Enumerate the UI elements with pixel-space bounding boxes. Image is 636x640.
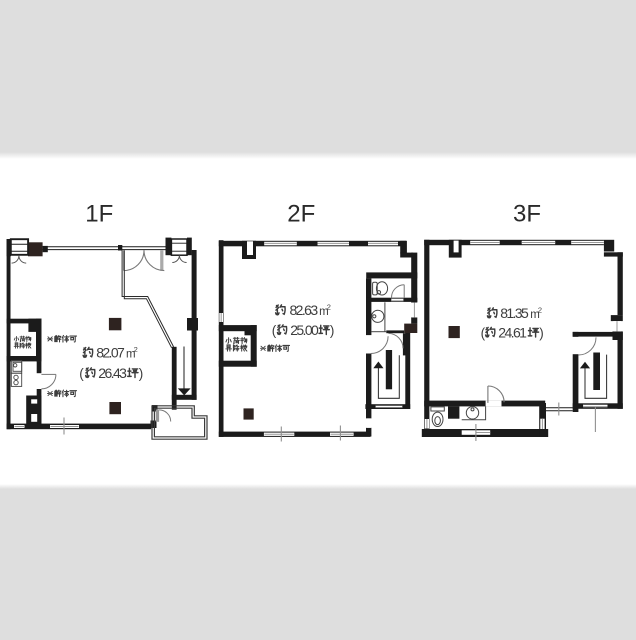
svg-text:): ) (139, 366, 144, 381)
svg-text:2: 2 (134, 345, 138, 354)
svg-text:82.07: 82.07 (96, 345, 125, 361)
svg-text:24.61: 24.61 (498, 324, 527, 340)
svg-text:81.35: 81.35 (500, 305, 529, 321)
svg-text:2: 2 (538, 306, 542, 315)
svg-text:): ) (330, 323, 335, 338)
svg-text:3F: 3F (513, 201, 541, 228)
svg-text:25.00: 25.00 (290, 322, 319, 338)
svg-text:(: ( (481, 325, 486, 340)
svg-text:1F: 1F (85, 201, 113, 228)
svg-text:26.43: 26.43 (98, 365, 127, 381)
svg-text:(: ( (79, 366, 84, 381)
svg-text:2F: 2F (287, 201, 315, 228)
svg-text:82.63: 82.63 (290, 302, 319, 318)
svg-text:(: ( (272, 323, 277, 338)
svg-text:2: 2 (327, 303, 331, 312)
svg-text:): ) (539, 325, 544, 340)
